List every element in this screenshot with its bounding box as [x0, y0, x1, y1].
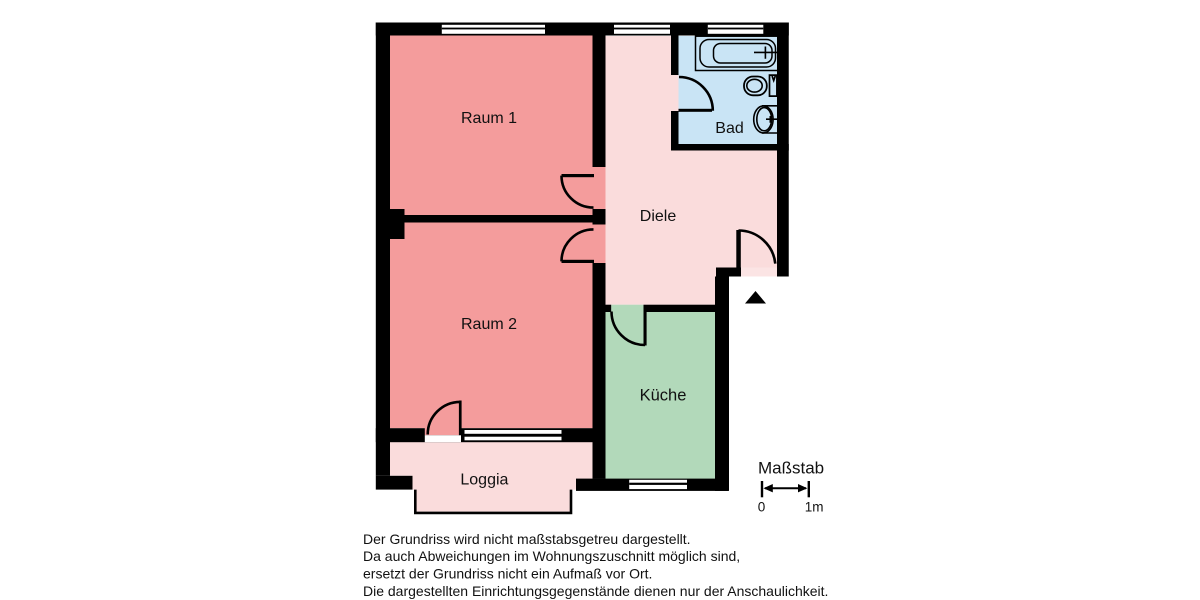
svg-text:Da auch Abweichungen im Wohnun: Da auch Abweichungen im Wohnungszuschnit…	[363, 548, 740, 564]
svg-text:Raum 1: Raum 1	[461, 110, 517, 127]
svg-text:Loggia: Loggia	[460, 471, 508, 488]
svg-text:Bad: Bad	[715, 120, 743, 137]
svg-text:0: 0	[758, 500, 766, 515]
svg-text:Diele: Diele	[640, 208, 677, 225]
svg-text:Maßstab: Maßstab	[758, 458, 824, 477]
svg-text:Raum 2: Raum 2	[461, 316, 517, 333]
svg-text:Küche: Küche	[640, 387, 687, 405]
svg-text:Die dargestellten Einrichtungs: Die dargestellten Einrichtungsgegenständ…	[363, 583, 828, 599]
svg-text:ersetzt der Grundriss nicht ei: ersetzt der Grundriss nicht ein Aufmaß v…	[363, 566, 652, 582]
svg-text:Der Grundriss wird nicht maßst: Der Grundriss wird nicht maßstabsgetreu …	[363, 531, 691, 547]
svg-text:1m: 1m	[805, 500, 824, 515]
